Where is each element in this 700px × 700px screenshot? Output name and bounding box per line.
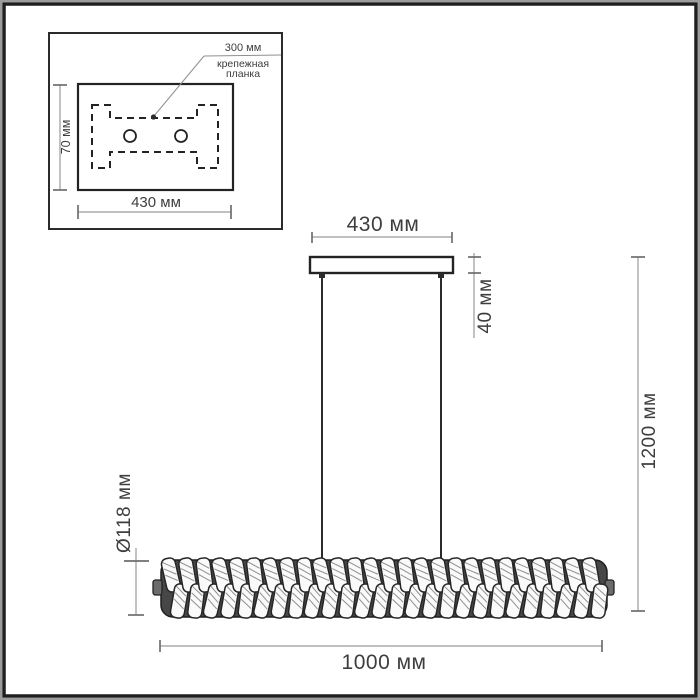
inset-depth-label: 70 мм [59,120,73,155]
wire-fitting-right [438,273,444,278]
bar-end-cap-left [153,580,162,595]
callout-dot [151,114,156,119]
crystal-bar [153,557,614,619]
plate-outline [78,84,233,190]
canopy-width-label: 430 мм [347,213,420,236]
canopy-height-label: 40 мм [475,278,496,333]
body-diameter-label: Ø118 мм [114,473,135,553]
ceiling-canopy [310,257,453,273]
body-length-label: 1000 мм [342,651,427,674]
holes-span-label: 300 мм [225,42,262,54]
mounting-plate-inset: 70 мм 430 мм 300 мм крепежная планка [49,33,282,229]
inset-width-label: 430 мм [131,194,181,211]
dimension-diagram: 70 мм 430 мм 300 мм крепежная планка [0,0,700,700]
overall-height-label: 1200 мм [639,392,660,469]
wire-fitting-left [319,273,325,278]
bracket-caption-line2: планка [226,68,260,80]
